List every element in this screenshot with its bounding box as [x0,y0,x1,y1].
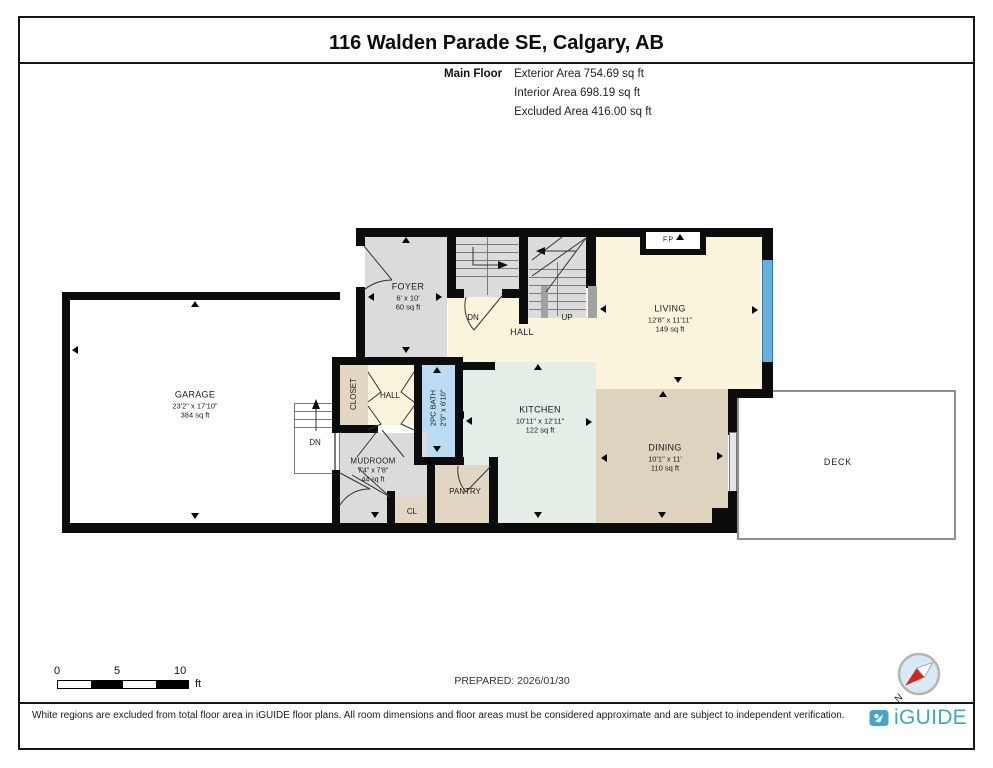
dim-arrow [458,411,464,419]
room-label-pantry: PANTRY [449,487,481,497]
dim-arrow [674,377,682,383]
room-label-hall: HALL [510,327,534,339]
room-label-closet: CLOSET [349,378,359,410]
closet-bifold [368,406,381,430]
scale-unit: ft [195,678,201,690]
arrowhead [312,399,320,409]
dim-arrow [600,305,606,313]
dim-arrow [717,452,723,460]
floor-label: Main Floor [444,68,502,125]
dim-arrow [191,301,199,307]
room-label-garage: GARAGE23'2" x 17'10"384 sq ft [172,389,217,420]
room-label-foyer: FOYER6' x 10'60 sq ft [392,281,425,312]
room-label-living: LIVING12'8" x 11'11"149 sq ft [648,303,692,334]
compass-icon: N [889,648,947,706]
bath-door [401,372,414,402]
room-label-hall-small: HALL [380,391,400,401]
iguide-logo-text: iGUIDE [894,706,967,730]
dim-arrow [601,454,607,462]
stair-direction-line [473,247,498,265]
dim-arrow [534,364,542,370]
garage-door-arc [340,489,370,505]
mudroom-door-leaf [382,430,404,457]
exterior-area: Exterior Area 754.69 sq ft [514,68,651,80]
front-door-leaf [364,246,392,280]
room-label-deck: DECK [824,457,852,469]
winder-tread [546,238,586,292]
dim-arrow [371,512,379,518]
winder-tread [532,237,562,260]
floor-plan-page: 116 Walden Parade SE, Calgary, AB Main F… [0,0,993,768]
winder-tread [532,238,586,276]
prepared-date: PREPARED: 2026/01/30 [402,675,622,687]
room-label-kitchen: KITCHEN10'11" x 12'11"122 sq ft [516,404,564,435]
iguide-brand: iGUIDE [868,706,967,730]
dim-arrow [402,347,410,353]
dim-arrow [72,346,78,354]
dim-arrow [752,306,758,314]
front-door-arc [364,280,392,290]
dim-arrow [191,513,199,519]
interior-area: Interior Area 698.19 sq ft [514,87,651,99]
dim-arrow [436,293,442,301]
dim-arrow [658,512,666,518]
page-title: 116 Walden Parade SE, Calgary, AB [0,32,993,55]
excluded-area: Excluded Area 416.00 sq ft [514,106,651,118]
bath-door [401,406,414,430]
stair-label-dn: DN [467,313,479,323]
dim-arrow [676,234,684,240]
iguide-logo-icon [868,708,890,728]
title-divider [18,62,975,64]
dim-arrow [433,367,441,373]
dim-arrow [659,391,667,397]
floor-stats: Main Floor Exterior Area 754.69 sq ft In… [444,68,652,125]
scale-bar-graphic [57,680,189,689]
dim-arrow [534,512,542,518]
dim-arrow [586,418,592,426]
footer-divider [18,702,975,704]
dim-arrow [368,293,374,301]
scale-tick-10: 10 [174,665,186,677]
arrowhead [498,261,508,269]
scale-tick-0: 0 [54,665,60,677]
dim-arrow [402,237,410,243]
stair-label-garage-dn: DN [309,438,321,448]
room-label-cl: CL [407,507,417,517]
mudroom-door-leaf [357,430,378,457]
fireplace-label: F.P [663,235,673,244]
room-label-mudroom: MUDROOM7'4" x 7'8"44 sq ft [350,457,395,486]
room-label-dining: DINING10'1" x 11'110 sq ft [648,442,682,473]
dim-arrow [428,459,434,467]
stair-label-up: UP [561,313,572,323]
room-label-bath: 2PC BATH2'9" x 6'10" [428,390,448,427]
footer-disclaimer: White regions are excluded from total fl… [32,710,845,721]
dim-arrow [433,446,441,452]
scale-tick-5: 5 [114,665,120,677]
scale-bar: 0 5 10 ft [52,665,202,689]
dim-arrow [466,417,472,425]
